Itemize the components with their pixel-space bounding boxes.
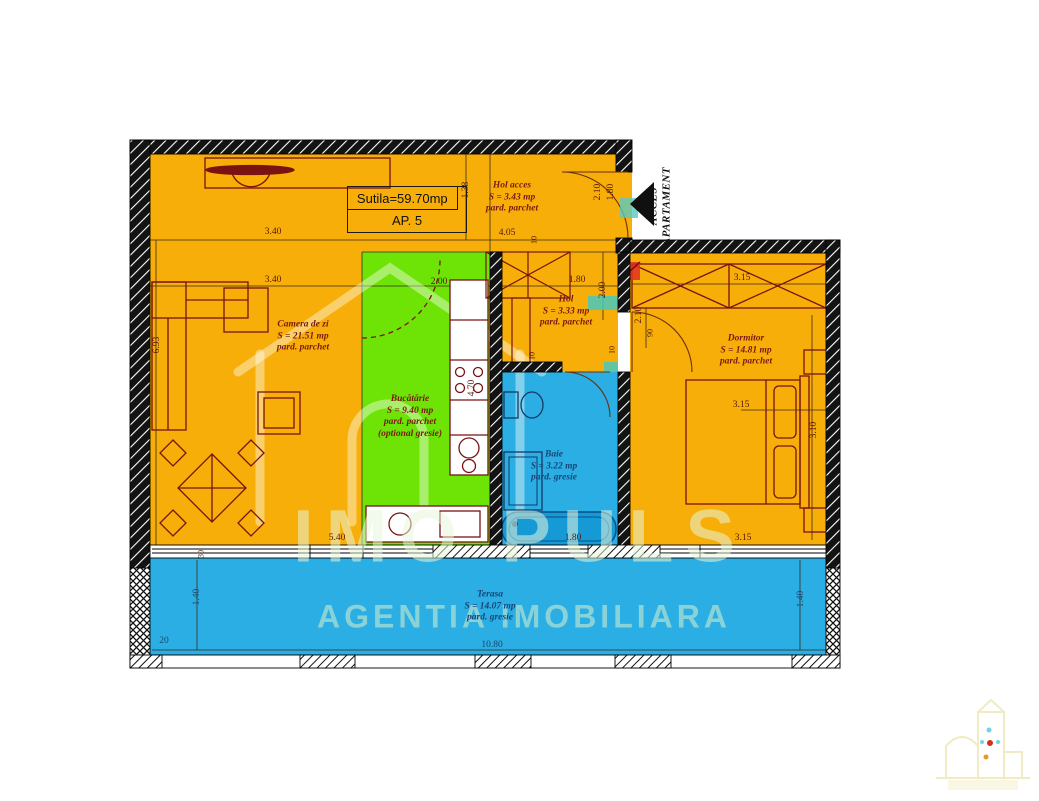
dimension-label: 2.10 <box>634 307 644 324</box>
room-name: Hol <box>540 295 592 307</box>
apartment-number-label: AP. 5 <box>348 210 466 230</box>
room-name: Hol acces <box>486 181 538 193</box>
dimension-label: 3.15 <box>735 533 752 543</box>
dimension-label: 2.00 <box>431 277 448 287</box>
room-label-dormitor: Dormitor S = 14.81 mp pard. parchet <box>720 334 772 369</box>
room-name: Dormitor <box>720 334 772 346</box>
room-name: Camera de zi <box>277 320 329 332</box>
room-name: Baie <box>531 450 578 462</box>
floor-plan-page: IMO PULS AGENTIA IMOBILIARA Sutila=59.70… <box>0 0 1039 801</box>
room-floor: pard. parchet <box>378 417 442 429</box>
dimension-label: 2.00 <box>598 282 608 299</box>
dimension-label: 1.80 <box>569 275 586 285</box>
access-apartment-label: ACCES APARTAMENT <box>648 167 673 245</box>
title-box: Sutila=59.70mp AP. 5 <box>347 186 467 233</box>
room-area: S = 3.22 mp <box>531 461 578 473</box>
agency-logo-icon <box>936 700 1030 790</box>
tv-icon <box>206 166 294 175</box>
dimension-label: 6.93 <box>152 337 162 354</box>
room-label-baie: Baie S = 3.22 mp pard. gresie <box>531 450 578 485</box>
room-label-hol-acces: Hol acces S = 3.43 mp pard. parchet <box>486 181 538 216</box>
dimension-label: 10 <box>528 352 537 360</box>
dimension-label: 10.80 <box>481 640 502 650</box>
room-floor: pard. parchet <box>277 343 329 355</box>
dimension-label: 4.70 <box>467 380 477 397</box>
room-area: S = 14.81 mp <box>720 345 772 357</box>
access-line1: ACCES <box>648 167 661 245</box>
dimension-label: 5.40 <box>329 533 346 543</box>
dimension-label: 30 <box>197 550 206 558</box>
dimension-label: 1.80 <box>606 184 616 201</box>
dimension-label: 3.10 <box>809 422 819 439</box>
access-line2: APARTAMENT <box>660 167 673 245</box>
room-note: (optional gresie) <box>378 429 442 441</box>
dimension-label: 10 <box>530 236 539 244</box>
dimension-label: 4.05 <box>499 228 516 238</box>
dimension-label: 3.40 <box>265 227 282 237</box>
room-label-bucatarie: Bucătărie S = 9.40 mp pard. parchet (opt… <box>378 394 442 440</box>
room-area: S = 3.43 mp <box>486 192 538 204</box>
dimension-label: 1.80 <box>565 533 582 543</box>
room-floor: pard. parchet <box>720 357 772 369</box>
dimension-label: 3.15 <box>733 400 750 410</box>
room-floor: pard. gresie <box>531 473 578 485</box>
dimension-label: 10 <box>608 346 617 354</box>
dimension-label: 2.10 <box>593 184 603 201</box>
room-floor: pard. parchet <box>486 204 538 216</box>
room-area: S = 21.51 mp <box>277 331 329 343</box>
dimension-label: 1.40 <box>796 591 806 608</box>
room-label-camera-de-zi: Camera de zi S = 21.51 mp pard. parchet <box>277 320 329 355</box>
dimension-label: 90 <box>646 329 655 337</box>
room-area: S = 3.33 mp <box>540 306 592 318</box>
watermark-brand: IMO PULS <box>293 494 747 579</box>
room-label-hol: Hol S = 3.33 mp pard. parchet <box>540 295 592 330</box>
room-floor: pard. parchet <box>540 318 592 330</box>
floor-plan-drawing <box>0 0 1039 801</box>
watermark-tagline: AGENTIA IMOBILIARA <box>317 599 731 636</box>
room-name: Terasa <box>464 590 515 602</box>
dimension-label: 3.15 <box>734 273 751 283</box>
room-area: S = 14.07 mp <box>464 601 515 613</box>
dimension-label: 20 <box>159 636 169 646</box>
dimension-label: 3.40 <box>265 275 282 285</box>
room-area: S = 9.40 mp <box>378 405 442 417</box>
room-label-terasa: Terasa S = 14.07 mp pard. gresie <box>464 590 515 625</box>
dimension-label: 1.40 <box>192 589 202 606</box>
room-name: Bucătărie <box>378 394 442 406</box>
surface-area-label: Sutila=59.70mp <box>348 187 458 210</box>
dimension-label: 1.38 <box>461 182 471 199</box>
room-floor: pard. gresie <box>464 613 515 625</box>
kitchen-counter-icon <box>450 280 488 475</box>
